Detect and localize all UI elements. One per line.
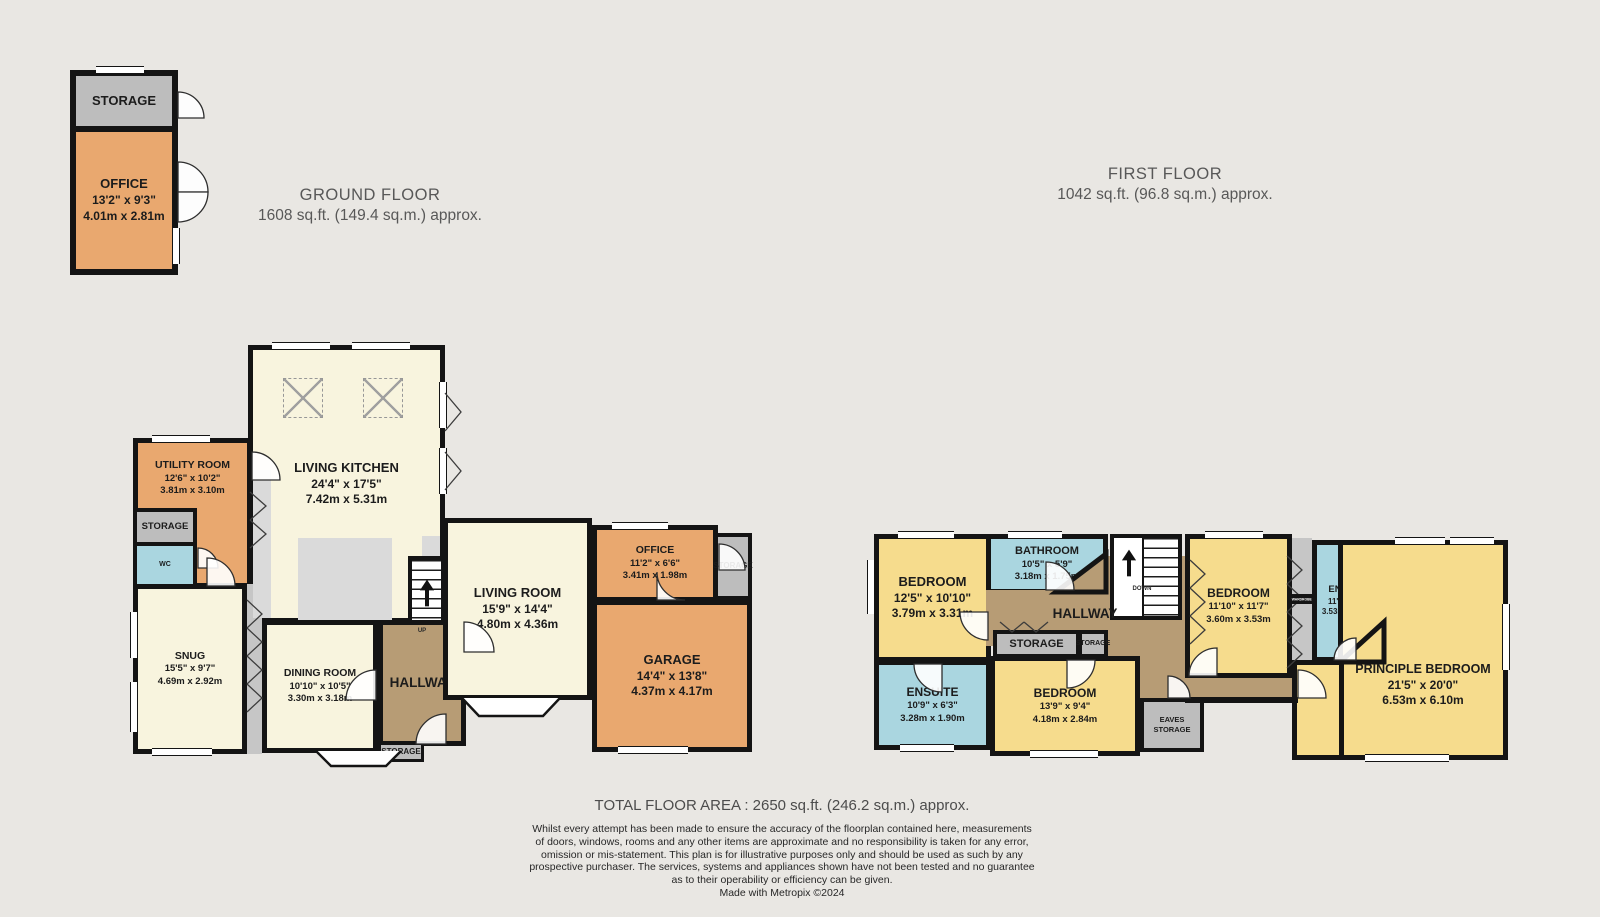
skylight-icon	[283, 378, 323, 418]
dining-room: DINING ROOM 10'10" x 10'5" 3.30m x 3.18m	[262, 620, 378, 753]
disclaimer-line: prospective purchaser. The services, sys…	[432, 861, 1132, 874]
bathroom-room: BATHROOM 10'5" x 5'9" 3.18m x 1.75m	[986, 534, 1108, 594]
window	[172, 228, 180, 264]
window	[352, 342, 410, 350]
disclaimer-line: omission or mis-statement. This plan is …	[432, 849, 1132, 862]
disclaimer-line: as to their operability or efficiency ca…	[432, 874, 1132, 887]
ground-floor-title: GROUND FLOOR	[170, 186, 570, 205]
outbuilding-office-label: OFFICE 13'2" x 9'3" 4.01m x 2.81m	[83, 176, 164, 224]
utility-room-label: UTILITY ROOM 12'6" x 10'2" 3.81m x 3.10m	[155, 459, 230, 497]
eaves-storage-room: EAVES STORAGE	[1140, 698, 1204, 752]
window	[439, 382, 447, 428]
first-hallway-label: HALLWAY	[1020, 604, 1150, 622]
bathroom-label: BATHROOM 10'5" x 5'9" 3.18m x 1.75m	[1015, 545, 1079, 583]
floorplan-canvas: GROUND FLOOR 1608 sq.ft. (149.4 sq.m.) a…	[0, 0, 1600, 917]
disclaimer-line: of doors, windows, rooms and any other i…	[432, 836, 1132, 849]
outbuilding-office-room: OFFICE 13'2" x 9'3" 4.01m x 2.81m	[70, 126, 178, 275]
disclaimer-line: Whilst every attempt has been made to en…	[432, 823, 1132, 836]
window	[1450, 537, 1494, 545]
window	[152, 435, 210, 443]
first-storage-label: STORAGE	[1009, 637, 1063, 651]
first-storage-room: STORAGE	[993, 630, 1080, 658]
dining-room-label: DINING ROOM 10'10" x 10'5" 3.30m x 3.18m	[284, 667, 356, 705]
skylight-icon	[363, 378, 403, 418]
up-label: UP	[404, 626, 440, 636]
window	[867, 560, 875, 614]
principle-bedroom-label: PRINCIPLE BEDROOM 21'5" x 20'0" 6.53m x …	[1332, 662, 1514, 708]
garage-room: GARAGE 14'4" x 13'8" 4.37m x 4.17m	[592, 600, 752, 752]
first-floor-area: 1042 sq.ft. (96.8 sq.m.) approx.	[965, 186, 1365, 204]
footer-block: TOTAL FLOOR AREA : 2650 sq.ft. (246.2 sq…	[432, 797, 1132, 900]
metropix-credit: Made with Metropix ©2024	[432, 887, 1132, 900]
living-room-label: LIVING ROOM 15'9" x 14'4" 4.80m x 4.36m	[474, 585, 561, 633]
ground-floor-title-block: GROUND FLOOR 1608 sq.ft. (149.4 sq.m.) a…	[170, 186, 570, 225]
hall-storage-label: STORAGE	[381, 747, 420, 757]
window	[1030, 750, 1098, 758]
window	[130, 682, 138, 732]
window	[898, 531, 954, 539]
kitchen-island	[298, 538, 392, 620]
bedroom-2-label: BEDROOM 13'9" x 9'4" 4.18m x 2.84m	[1033, 686, 1097, 726]
first-floor-title-block: FIRST FLOOR 1042 sq.ft. (96.8 sq.m.) app…	[965, 165, 1365, 204]
ensuite-1-label: ENSUITE 10'9" x 6'3" 3.28m x 1.90m	[900, 685, 964, 725]
eaves-storage-label: EAVES STORAGE	[1144, 715, 1200, 735]
kitchen-counter-left	[253, 470, 271, 618]
window	[272, 342, 330, 350]
window	[130, 612, 138, 658]
window	[1395, 537, 1445, 545]
wardrobe-label: WARDROBE	[1291, 594, 1313, 604]
window	[152, 748, 212, 756]
office-storage-label: STORAGE	[713, 561, 752, 571]
first-storage-small-room: STORAGE	[1078, 630, 1108, 658]
ground-storage-label: STORAGE	[142, 521, 189, 533]
window	[612, 522, 668, 530]
hall-storage-room: STORAGE	[378, 742, 424, 762]
window	[1365, 754, 1449, 762]
window	[618, 746, 688, 754]
window	[1008, 531, 1062, 539]
first-floor-title: FIRST FLOOR	[965, 165, 1365, 184]
ground-office-label: OFFICE 11'2" x 6'6" 3.41m x 1.98m	[623, 544, 687, 582]
office-storage-room: STORAGE	[714, 533, 752, 600]
living-room-bay-window	[462, 698, 560, 716]
first-bedroom-1: BEDROOM 12'5" x 10'10" 3.79m x 3.31m	[874, 534, 991, 662]
living-kitchen-label: LIVING KITCHEN 24'4" x 17'5" 7.42m x 5.3…	[294, 460, 399, 508]
first-storage-small-label: STORAGE	[1076, 639, 1111, 648]
wc-room: WC	[133, 542, 197, 588]
living-room: LIVING ROOM 15'9" x 14'4" 4.80m x 4.36m	[443, 518, 592, 700]
down-label: DOWN	[1116, 584, 1168, 593]
first-bedroom-2: BEDROOM 13'9" x 9'4" 4.18m x 2.84m	[990, 656, 1140, 756]
bedroom-1-label: BEDROOM 12'5" x 10'10" 3.79m x 3.31m	[892, 574, 973, 622]
window	[900, 744, 954, 752]
ground-storage-room: STORAGE	[133, 508, 197, 546]
snug-room: SNUG 15'5" x 9'7" 4.69m x 2.92m	[133, 584, 247, 754]
bedroom-3-label: BEDROOM 11'10" x 11'7" 3.60m x 3.53m	[1206, 586, 1270, 626]
outbuilding-storage-label: STORAGE	[92, 91, 156, 112]
ground-floor-area: 1608 sq.ft. (149.4 sq.m.) approx.	[170, 207, 570, 225]
total-floor-area: TOTAL FLOOR AREA : 2650 sq.ft. (246.2 sq…	[432, 797, 1132, 814]
window	[1205, 531, 1263, 539]
garage-label: GARAGE 14'4" x 13'8" 4.37m x 4.17m	[631, 652, 712, 700]
window	[96, 66, 144, 74]
ground-office-room: OFFICE 11'2" x 6'6" 3.41m x 1.98m	[592, 525, 718, 602]
window	[1502, 604, 1510, 670]
stairs-up-arrow-icon	[419, 576, 435, 610]
first-bedroom-3: BEDROOM 11'10" x 11'7" 3.60m x 3.53m	[1185, 534, 1292, 678]
window	[439, 448, 447, 494]
outbuilding-storage-room: STORAGE	[70, 70, 178, 132]
ensuite-1-room: ENSUITE 10'9" x 6'3" 3.28m x 1.90m	[874, 660, 991, 750]
principle-bedroom	[1338, 540, 1508, 760]
ground-stairs	[408, 556, 445, 624]
wc-label: WC	[159, 560, 171, 569]
stairs-up-arrow-icon	[1121, 546, 1137, 580]
snug-label: SNUG 15'5" x 9'7" 4.69m x 2.92m	[158, 650, 222, 688]
